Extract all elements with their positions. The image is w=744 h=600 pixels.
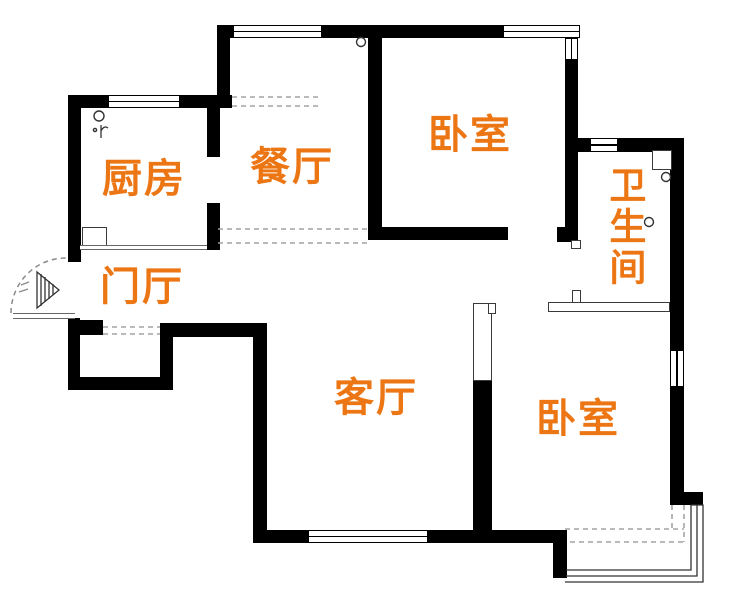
wall-living-left [253,323,267,543]
wall-kitchen-dining-upper [207,108,220,157]
wall-living-bedroom-partition-solid [473,380,492,531]
entry-door-swing-arc [11,258,66,313]
window-bedroom-north-corner-h [503,25,580,38]
room-label-bathroom: 卫生间 [604,166,643,289]
window-bedroom-south-east [670,350,684,387]
kitchen-plumbing-mark [101,125,108,138]
bathroom-door-jamb [571,240,581,249]
wall-east-upper [670,138,684,350]
wall-bedroom-north-left [368,25,382,240]
wall-kitchen-dining-lower [207,203,220,250]
kitchen-threshold [80,245,207,250]
window-dining-alcove [233,25,322,38]
window-bathroom [590,138,618,152]
room-label-kitchen: 厨房 [102,158,186,200]
window-living-south [308,530,428,543]
wall-living-bottom-right [428,530,567,543]
bathroom-bedroom-partition-bar [548,302,670,312]
wall-east-corner-block [670,492,703,505]
wall-kitchen-top-left [68,95,108,108]
room-label-bedroom-south: 卧室 [536,398,620,440]
entry-door-leaf [19,272,59,308]
window-bedroom-north-corner-v [565,38,578,60]
wall-east-lower [670,387,684,492]
room-label-entry-hall: 门厅 [100,266,184,308]
wall-bedroom-north-bottom [368,227,508,240]
wall-bathroom-top-left [573,138,590,152]
floor-plan: 厨房 餐厅 卧室 卫生间 门厅 客厅 卧室 [0,0,744,600]
partition-hollow-notch [488,303,496,314]
wall-notch-bottom [68,377,173,390]
wall-top-main [322,25,503,38]
wall-hall-bottom [160,323,267,337]
wall-bay-step [553,530,567,578]
wall-top-stub [217,25,233,38]
dashed-openings [103,97,684,542]
room-label-dining: 餐厅 [250,146,334,188]
alcove-point [357,38,366,47]
entry-door-sill [13,313,75,319]
wall-hall-stub [80,320,103,335]
bathroom-sink [652,150,672,170]
window-kitchen-north [108,95,180,108]
partition-bar-tab [572,290,581,303]
room-label-living: 客厅 [334,377,418,419]
wall-kitchen-left [68,95,81,262]
kitchen-small-dot [93,128,96,131]
wall-notch-left [68,318,80,390]
living-bedroom-partition-hollow [473,303,492,381]
bay-window-lines [565,505,703,582]
bathroom-point-lower [645,218,654,227]
room-label-bedroom-north: 卧室 [428,114,512,156]
kitchen-gas-point [94,111,104,121]
